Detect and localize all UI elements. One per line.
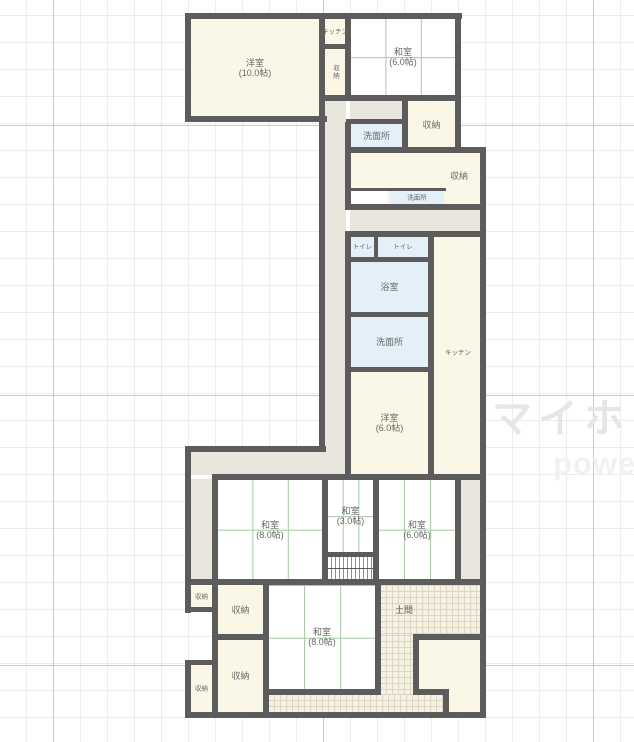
room-label-toilet-1: トイレ: [353, 244, 373, 251]
room-label-yoshitsu-6: 洋室(6.0帖): [376, 413, 404, 433]
room-label-senmenjo-3: 洗面所: [376, 337, 403, 347]
watermark-brand-text: マイホ: [492, 386, 630, 444]
room-doma-2[interactable]: [380, 635, 414, 695]
room-hall-c[interactable]: [350, 210, 481, 232]
room-label-closet-mid-2: 収納: [231, 671, 249, 681]
wall-segment: [346, 367, 434, 372]
room-hall-f[interactable]: [460, 479, 481, 580]
wall-segment: [413, 634, 485, 640]
wall-segment: [428, 231, 434, 480]
wall-segment: [185, 712, 485, 718]
wall-segment: [346, 204, 485, 210]
room-label-closet-wide: 収納: [450, 171, 468, 181]
room-label-doma-1: 土間: [395, 605, 413, 615]
room-label-senmenjo-1: 洗面所: [363, 131, 390, 141]
room-hall-nook[interactable]: [350, 190, 387, 205]
room-label-washitsu-6-top: 和室(6.0帖): [389, 47, 417, 67]
room-label-washitsu-3: 和室(3.0帖): [337, 506, 365, 526]
room-label-kitchen-top: キッチン: [322, 28, 348, 35]
room-label-closet-small-1: 収納: [195, 594, 208, 601]
floorplan-canvas[interactable]: マイホ power 洋室(10.0帖)キッチン収納和室(6.0帖)洗面所収納収納…: [0, 0, 634, 742]
wall-segment: [346, 312, 434, 317]
room-hall-b[interactable]: [350, 100, 403, 120]
room-genkan-2[interactable]: [448, 639, 481, 713]
room-label-washitsu-8-lower: 和室(8.0帖): [308, 627, 336, 647]
room-hall-d[interactable]: [190, 451, 347, 475]
wall-segment: [185, 13, 191, 122]
wall-segment: [443, 689, 449, 718]
wall-segment: [346, 231, 485, 237]
room-label-washitsu-8-upper: 和室(8.0帖): [256, 520, 284, 540]
room-stairs[interactable]: [327, 556, 374, 580]
room-hall-a[interactable]: [324, 100, 346, 475]
wall-segment: [185, 660, 191, 718]
wall-segment: [455, 97, 461, 153]
room-label-closet-upper-right: 収納: [422, 120, 440, 130]
room-label-kitchen-strip: キッチン: [445, 350, 471, 357]
wall-segment: [374, 234, 378, 260]
wall-segment: [185, 579, 485, 585]
room-doma-3[interactable]: [268, 694, 444, 713]
wall-segment: [413, 634, 419, 695]
wall-segment: [455, 479, 461, 580]
wall-segment: [320, 95, 460, 101]
room-hall-e[interactable]: [190, 479, 213, 580]
room-label-senmenjo-2: 洗面所: [407, 194, 427, 201]
wall-segment: [402, 97, 408, 153]
wall-segment: [455, 13, 461, 103]
wall-segment: [212, 585, 218, 718]
watermark-powered-text: power: [553, 446, 634, 482]
wall-segment: [480, 147, 486, 718]
wall-segment: [322, 479, 328, 580]
room-label-closet-top: 収納: [331, 65, 340, 80]
wall-segment: [348, 188, 446, 191]
wall-segment: [322, 552, 378, 557]
wall-segment: [345, 231, 351, 480]
room-label-yoshitsu-10: 洋室(10.0帖): [239, 58, 272, 78]
wall-segment: [375, 579, 381, 695]
room-label-washitsu-6-mid: 和室(6.0帖): [403, 520, 431, 540]
wall-segment: [346, 257, 434, 262]
room-label-bathroom: 浴室: [380, 282, 398, 292]
wall-segment: [185, 446, 326, 452]
wall-segment: [319, 95, 325, 452]
wall-segment: [346, 119, 408, 124]
wall-segment: [263, 689, 381, 695]
wall-segment: [346, 147, 485, 153]
wall-segment: [212, 634, 269, 640]
wall-segment: [263, 585, 269, 718]
wall-segment: [185, 116, 327, 122]
room-label-toilet-2: トイレ: [393, 244, 413, 251]
wall-segment: [345, 13, 351, 101]
wall-segment: [212, 474, 218, 585]
wall-segment: [373, 479, 379, 580]
wall-segment: [185, 446, 191, 613]
wall-segment: [345, 122, 351, 210]
room-label-closet-mid-1: 収納: [231, 605, 249, 615]
room-label-closet-small-2: 収納: [195, 686, 208, 693]
